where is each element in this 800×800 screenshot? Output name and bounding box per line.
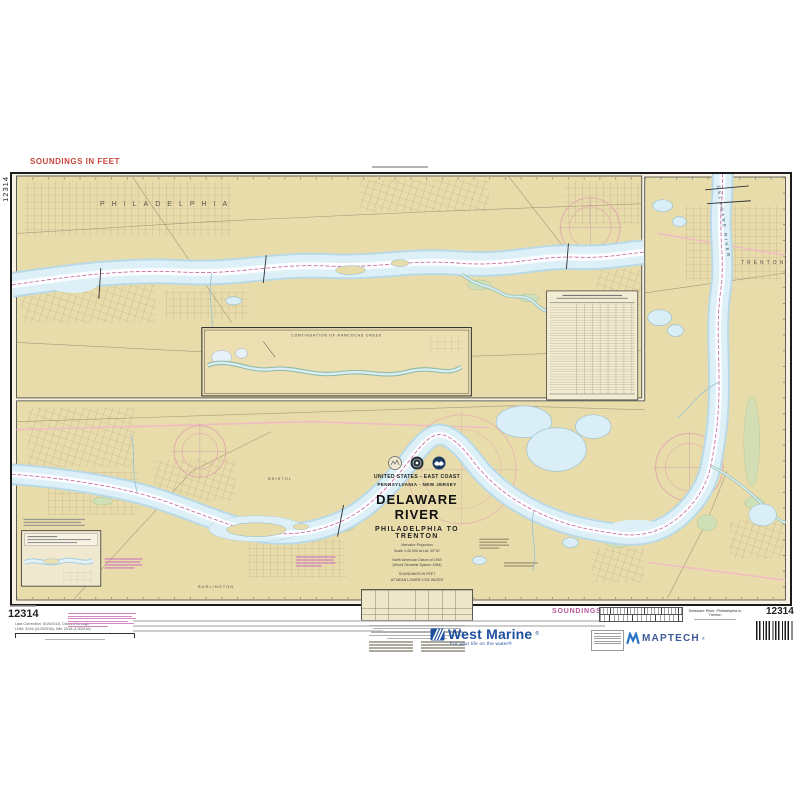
logarithmic-speed-scale <box>599 607 683 622</box>
philadelphia-label: PHILADELPHIA <box>100 201 234 208</box>
mini-inset-caption <box>24 519 85 526</box>
region-line-2: PENNSYLVANIA - NEW JERSEY <box>352 482 482 487</box>
datum-note: North American Datum of 1983 (World Geod… <box>352 558 482 570</box>
maptech-m-icon <box>626 632 640 644</box>
west-marine-flag-icon <box>430 628 445 641</box>
west-marine-logo: West Marine® For your life on the water® <box>430 626 539 647</box>
chart-number-bottom-right: 12314 <box>766 606 794 617</box>
bottom-right-chart-title: Delaware River, Philadelphia to Trenton <box>683 609 747 620</box>
magenta-note-placeholder <box>68 613 136 629</box>
bristol-label: BRISTOL <box>268 476 292 481</box>
west-marine-name: West Marine <box>448 626 532 642</box>
west-marine-tagline: For your life on the water® <box>450 642 539 647</box>
edition-note-placeholder <box>10 605 36 607</box>
river-island <box>293 524 309 530</box>
maptech-address-placeholder <box>591 630 624 651</box>
rancocas-inset: CONTINUATION OF RANCOCAS CREEK <box>202 328 471 396</box>
note-scale: Scale 1:40,000 at Lat. 40°10' <box>352 549 482 555</box>
barcode <box>756 621 794 640</box>
top-margin-note-placeholder <box>372 166 428 168</box>
west-marine-reg: ® <box>535 631 539 637</box>
bottom-right-subtitle-placeholder <box>694 619 736 620</box>
projection-note: Mercator Projection Scale 1:40,000 at La… <box>352 543 482 555</box>
chart-subtitle: PHILADELPHIA TO TRENTON <box>352 526 482 540</box>
burlington-island <box>227 523 286 537</box>
river-island <box>336 266 366 275</box>
chart-number-bottom-left: 12314 <box>8 608 39 620</box>
river-island <box>391 260 409 267</box>
soundings-in-feet-top: SOUNDINGS IN FEET <box>30 157 120 166</box>
inset-title: CONTINUATION OF RANCOCAS CREEK <box>291 333 382 337</box>
note-wgs: (World Geodetic System 1984) <box>352 563 482 569</box>
facilities-table <box>547 291 638 400</box>
product-image: SOUNDINGS IN FEET 12314 <box>0 0 800 800</box>
maptech-logo: MAPTECH® <box>626 632 705 644</box>
region-line-1: UNITED STATES - EAST COAST <box>352 474 482 480</box>
maptech-name: MAPTECH <box>642 633 700 644</box>
maptech-reg: ® <box>702 636 705 641</box>
trenton-label: TRENTON <box>741 260 786 266</box>
agency-logos <box>352 455 482 471</box>
note-mllw: AT MEAN LOWER LOW WATER <box>352 578 482 584</box>
chart-number-left: 12314 <box>1 176 10 202</box>
eagle-seal-icon <box>409 455 425 471</box>
tidal-information-table <box>361 589 473 621</box>
noaa-logo-icon <box>431 455 447 471</box>
bottom-right-title-text: Delaware River, Philadelphia to Trenton <box>683 609 747 617</box>
correction-scale-line <box>15 633 135 638</box>
burlington-label: BURLINGTON <box>198 584 234 589</box>
soundings-note: SOUNDINGS IN FEET AT MEAN LOWER LOW WATE… <box>352 572 482 584</box>
commerce-seal-icon <box>387 455 403 471</box>
chart-title: DELAWARE RIVER <box>352 492 482 522</box>
scale-caption-placeholder <box>45 639 105 640</box>
mini-inset <box>22 531 101 586</box>
